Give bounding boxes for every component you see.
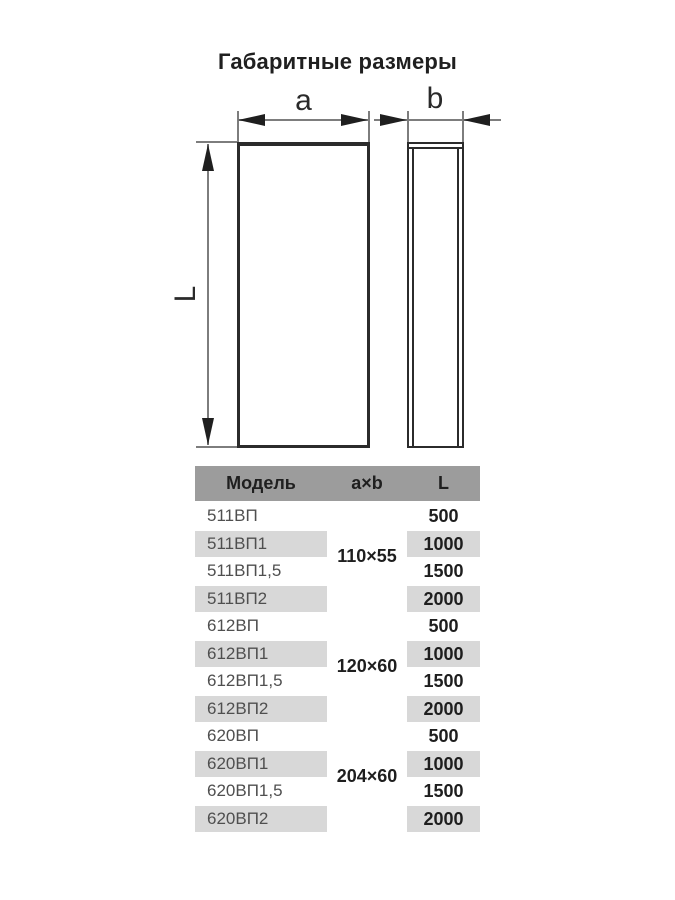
model-cell: 620ВП1 <box>195 751 327 777</box>
dimensions-table: Модель a×b L 511ВП500511ВП11000511ВП1,51… <box>195 466 480 833</box>
length-cell: 1000 <box>407 641 480 667</box>
dim-b-label: b <box>405 82 465 116</box>
dim-b-arrow-left-icon <box>380 114 407 126</box>
table-header-row: Модель a×b L <box>195 466 480 501</box>
table-header-length: L <box>407 473 480 494</box>
model-cell: 511ВП1,5 <box>195 558 327 584</box>
table-row: 620ВП22000 <box>195 806 480 832</box>
model-cell: 612ВП1,5 <box>195 668 327 694</box>
length-cell: 1000 <box>407 751 480 777</box>
side-view-inner-right-line <box>457 147 459 446</box>
table-body: 511ВП500511ВП11000511ВП1,51500511ВП22000… <box>195 501 480 832</box>
model-cell: 511ВП2 <box>195 586 327 612</box>
length-cell: 1000 <box>407 531 480 557</box>
length-cell: 2000 <box>407 806 480 832</box>
size-spacer-cell <box>327 586 407 612</box>
size-cell: 204×60 <box>327 765 407 787</box>
model-cell: 511ВП <box>195 503 327 529</box>
side-view-inner-left-line <box>412 147 414 446</box>
table-header-size: a×b <box>327 473 407 494</box>
table-row: 511ВП500 <box>195 503 480 529</box>
length-cell: 2000 <box>407 696 480 722</box>
length-cell: 500 <box>407 503 480 529</box>
model-cell: 612ВП2 <box>195 696 327 722</box>
size-spacer-cell <box>327 806 407 832</box>
length-cell: 1500 <box>407 778 480 804</box>
length-cell: 1500 <box>407 668 480 694</box>
dim-l-arrow-up-icon <box>202 144 214 171</box>
size-spacer-cell <box>327 723 407 749</box>
size-spacer-cell <box>327 696 407 722</box>
page: Габаритные размеры a b L <box>0 0 675 900</box>
size-spacer-cell <box>327 613 407 639</box>
dim-l-label: L <box>166 274 206 314</box>
model-cell: 620ВП1,5 <box>195 778 327 804</box>
table-row: 612ВП500 <box>195 613 480 639</box>
table-row: 612ВП22000 <box>195 696 480 722</box>
table-row: 511ВП22000 <box>195 586 480 612</box>
model-cell: 612ВП <box>195 613 327 639</box>
size-spacer-cell <box>327 503 407 529</box>
dim-a-label: a <box>238 84 369 118</box>
length-cell: 2000 <box>407 586 480 612</box>
model-cell: 612ВП1 <box>195 641 327 667</box>
side-view-outline <box>407 142 464 448</box>
dim-l-extension-top <box>196 141 237 143</box>
table-row: 620ВП500 <box>195 723 480 749</box>
size-cell: 110×55 <box>327 545 407 567</box>
length-cell: 1500 <box>407 558 480 584</box>
dim-l-arrow-down-icon <box>202 418 214 445</box>
table-header-model: Модель <box>195 473 327 494</box>
dim-l-line <box>207 144 209 445</box>
side-view-top-line <box>409 147 462 149</box>
model-cell: 620ВП <box>195 723 327 749</box>
model-cell: 511ВП1 <box>195 531 327 557</box>
dim-b-arrow-right-icon <box>463 114 490 126</box>
size-cell: 120×60 <box>327 655 407 677</box>
length-cell: 500 <box>407 723 480 749</box>
length-cell: 500 <box>407 613 480 639</box>
model-cell: 620ВП2 <box>195 806 327 832</box>
front-view-outline <box>237 142 370 448</box>
dim-l-extension-bottom <box>196 446 237 448</box>
